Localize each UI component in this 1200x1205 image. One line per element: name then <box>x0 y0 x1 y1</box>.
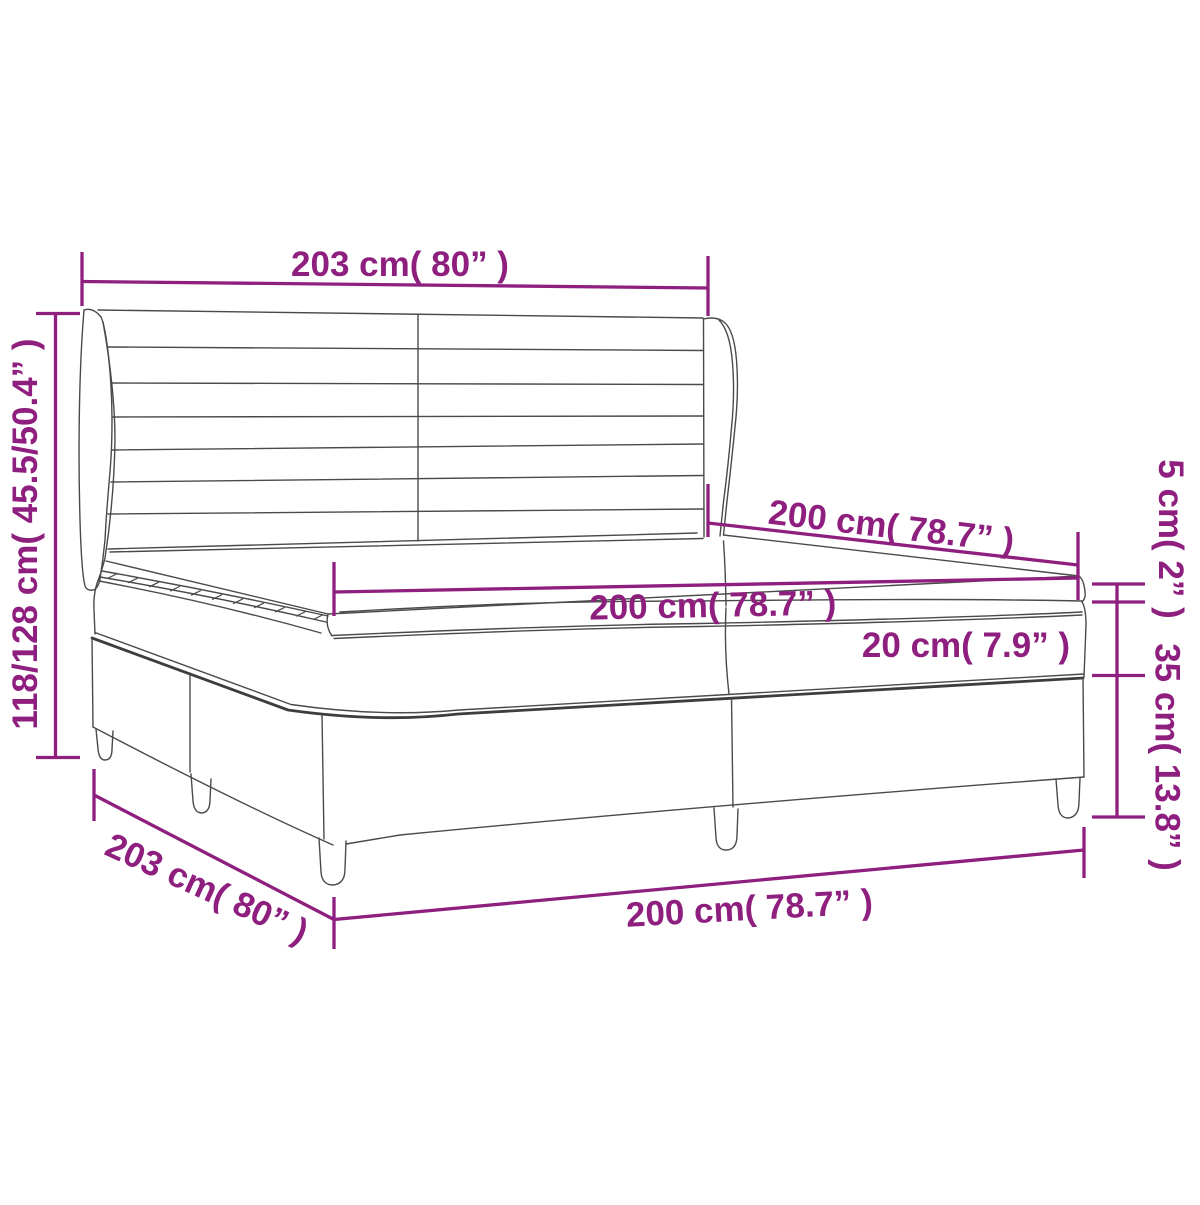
svg-text:200 cm( 78.7” ): 200 cm( 78.7” ) <box>589 583 837 627</box>
svg-text:5 cm( 2” ): 5 cm( 2” ) <box>1151 459 1190 619</box>
svg-text:118/128 cm( 45.5/50.4” ): 118/128 cm( 45.5/50.4” ) <box>6 338 45 729</box>
svg-text:35 cm( 13.8” ): 35 cm( 13.8” ) <box>1148 643 1187 871</box>
svg-text:20 cm( 7.9” ): 20 cm( 7.9” ) <box>862 626 1070 665</box>
svg-text:203 cm( 80” ): 203 cm( 80” ) <box>291 245 509 284</box>
